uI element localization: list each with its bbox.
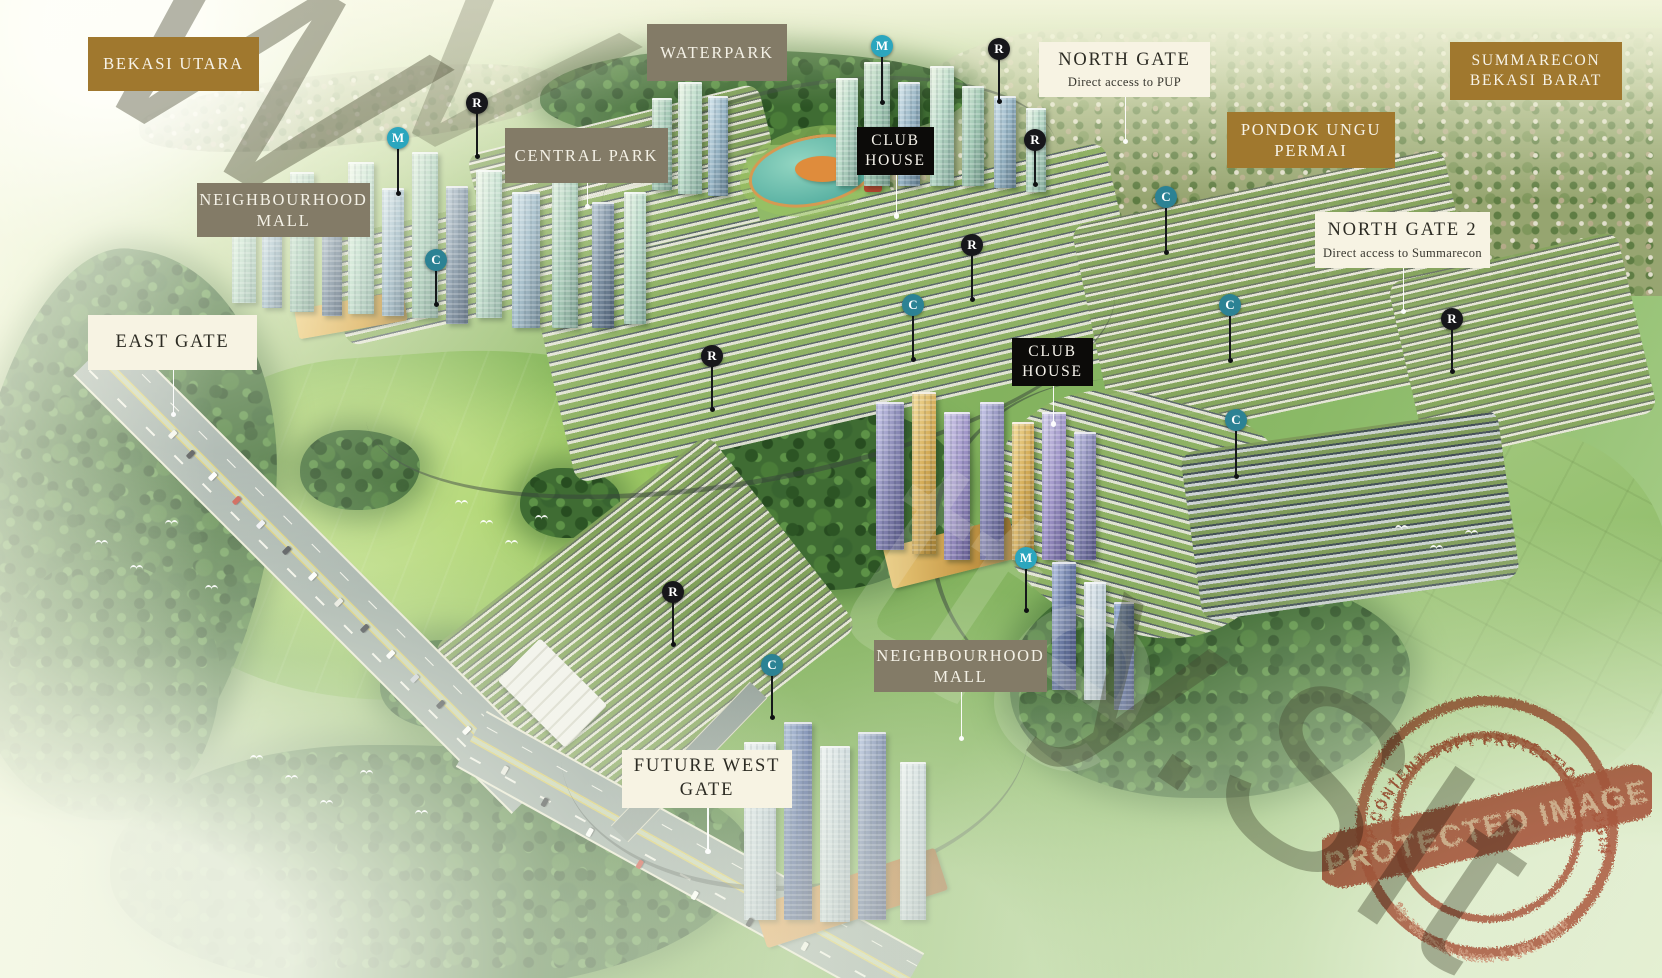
marker-badge: M: [387, 127, 409, 149]
marker-badge: C: [1225, 409, 1247, 431]
tower: [820, 746, 850, 922]
marker-badge: R: [466, 92, 488, 114]
tower: [552, 178, 578, 328]
stamp-arc-bottom-text: My Website Name & URL Here: [1389, 900, 1571, 966]
marker-dot: [475, 154, 480, 159]
label-pointer-line: [961, 692, 963, 737]
marker-badge: C: [761, 654, 783, 676]
marker-dot: [1450, 369, 1455, 374]
marker-dot: [671, 642, 676, 647]
marker-dot: [396, 191, 401, 196]
marker-dot: [434, 302, 439, 307]
label-pointer-line: [587, 183, 589, 205]
bird-icon: [165, 520, 179, 527]
label-neighbourhood-mall-2: NEIGHBOURHOOD MALL: [874, 640, 1047, 692]
bird-icon: [285, 775, 299, 782]
bird-icon: [205, 585, 219, 592]
label-neighbourhood-mall-1: NEIGHBOURHOOD MALL: [197, 183, 370, 237]
bird-icon: [480, 520, 494, 527]
label-pondok-ungu-permai: PONDOK UNGU PERMAI: [1227, 112, 1395, 168]
tower: [876, 402, 904, 550]
label-text: EAST GATE: [115, 331, 229, 355]
marker-badge: C: [902, 294, 924, 316]
tower: [912, 392, 936, 554]
tower: [446, 186, 468, 324]
marker-badge: R: [1441, 308, 1463, 330]
bird-icon: [415, 810, 429, 817]
bird-icon: [1465, 530, 1479, 537]
tower: [980, 402, 1004, 560]
bird-icon: [95, 540, 109, 547]
label-text: NEIGHBOURHOOD MALL: [876, 645, 1044, 687]
bird-icon: [320, 800, 334, 807]
label-text: CLUB HOUSE: [865, 131, 926, 171]
stamp-group: WP CONTENT COPY PROTECTION PLUGIN My Web…: [1322, 701, 1652, 966]
marker-badge: C: [425, 249, 447, 271]
bird-icon: [360, 770, 374, 777]
marker-dot: [997, 99, 1002, 104]
marker-dot: [1024, 608, 1029, 613]
label-text: CLUB HOUSE: [1020, 342, 1085, 382]
protected-image-stamp: WP CONTENT COPY PROTECTION PLUGIN My Web…: [1322, 662, 1652, 978]
marker-badge: R: [1024, 129, 1046, 151]
label-central-park: CENTRAL PARK: [505, 128, 668, 183]
label-east-gate: EAST GATE: [88, 315, 257, 370]
label-pointer-line: [173, 370, 175, 413]
tower: [708, 96, 728, 196]
label-pointer-line: [1125, 97, 1127, 140]
label-text: NORTH GATE 2: [1328, 219, 1478, 243]
label-north-gate: NORTH GATE Direct access to PUP: [1039, 42, 1210, 97]
tower: [382, 188, 404, 316]
tower: [412, 152, 438, 318]
marker-dot: [1234, 474, 1239, 479]
label-bekasi-utara: BEKASI UTARA: [88, 37, 259, 91]
label-pointer-line: [1403, 268, 1405, 310]
marker-dot: [710, 407, 715, 412]
masterplan-canvas: W V tte y.SIt BEKASI UTARA WATERPARK NOR…: [0, 0, 1662, 978]
bird-icon: [1395, 525, 1409, 532]
tower: [1052, 562, 1076, 690]
tower: [1074, 432, 1096, 560]
tower: [678, 82, 702, 194]
marker-badge: M: [1015, 547, 1037, 569]
marker-badge: R: [662, 581, 684, 603]
label-text: PONDOK UNGU PERMAI: [1235, 119, 1387, 161]
label-summarecon-bekasi-barat: SUMMARECON BEKASI BARAT: [1450, 42, 1622, 100]
marker-badge: R: [961, 234, 983, 256]
marker-badge: R: [701, 345, 723, 367]
bird-icon: [455, 500, 469, 507]
tower: [836, 78, 858, 186]
tower: [944, 412, 970, 560]
label-pointer-line: [707, 808, 709, 850]
label-future-west-gate: FUTURE WEST GATE: [622, 750, 792, 808]
label-text: FUTURE WEST GATE: [630, 755, 784, 802]
tower: [858, 732, 886, 920]
label-pointer-line: [1053, 386, 1055, 423]
tower: [1084, 582, 1106, 700]
tower: [592, 202, 614, 328]
marker-dot: [770, 715, 775, 720]
tower: [1114, 602, 1134, 710]
label-text: WATERPARK: [660, 42, 774, 63]
marker-badge: M: [871, 35, 893, 57]
tower: [994, 96, 1016, 188]
marker-dot: [1033, 182, 1038, 187]
label-text: BEKASI UTARA: [103, 53, 244, 74]
marker-dot: [880, 100, 885, 105]
label-club-house-1: CLUB HOUSE: [857, 127, 934, 175]
bird-icon: [250, 755, 264, 762]
label-text: CENTRAL PARK: [515, 145, 659, 166]
label-north-gate-2: NORTH GATE 2 Direct access to Summarecon: [1315, 212, 1490, 268]
label-text: NEIGHBOURHOOD MALL: [199, 189, 367, 231]
marker-dot: [1164, 250, 1169, 255]
marker-dot: [1228, 358, 1233, 363]
label-waterpark: WATERPARK: [647, 24, 787, 81]
bird-icon: [505, 540, 519, 547]
label-text: SUMMARECON BEKASI BARAT: [1458, 51, 1614, 91]
marker-badge: C: [1219, 294, 1241, 316]
tower: [624, 192, 646, 324]
bird-icon: [130, 565, 144, 572]
marker-dot: [970, 297, 975, 302]
bird-icon: [535, 515, 549, 522]
label-pointer-line: [896, 175, 898, 215]
marker-dot: [911, 357, 916, 362]
label-club-house-2: CLUB HOUSE: [1012, 338, 1093, 386]
tower: [962, 86, 984, 186]
bird-icon: [1430, 545, 1444, 552]
tower: [1012, 422, 1034, 560]
label-text: NORTH GATE: [1058, 49, 1191, 73]
label-subtext: Direct access to Summarecon: [1323, 246, 1482, 261]
marker-badge: C: [1155, 186, 1177, 208]
tower: [512, 192, 540, 328]
marker-badge: R: [988, 38, 1010, 60]
tower: [900, 762, 926, 920]
tower: [1042, 412, 1066, 560]
tower: [476, 170, 502, 318]
label-subtext: Direct access to PUP: [1068, 75, 1181, 90]
